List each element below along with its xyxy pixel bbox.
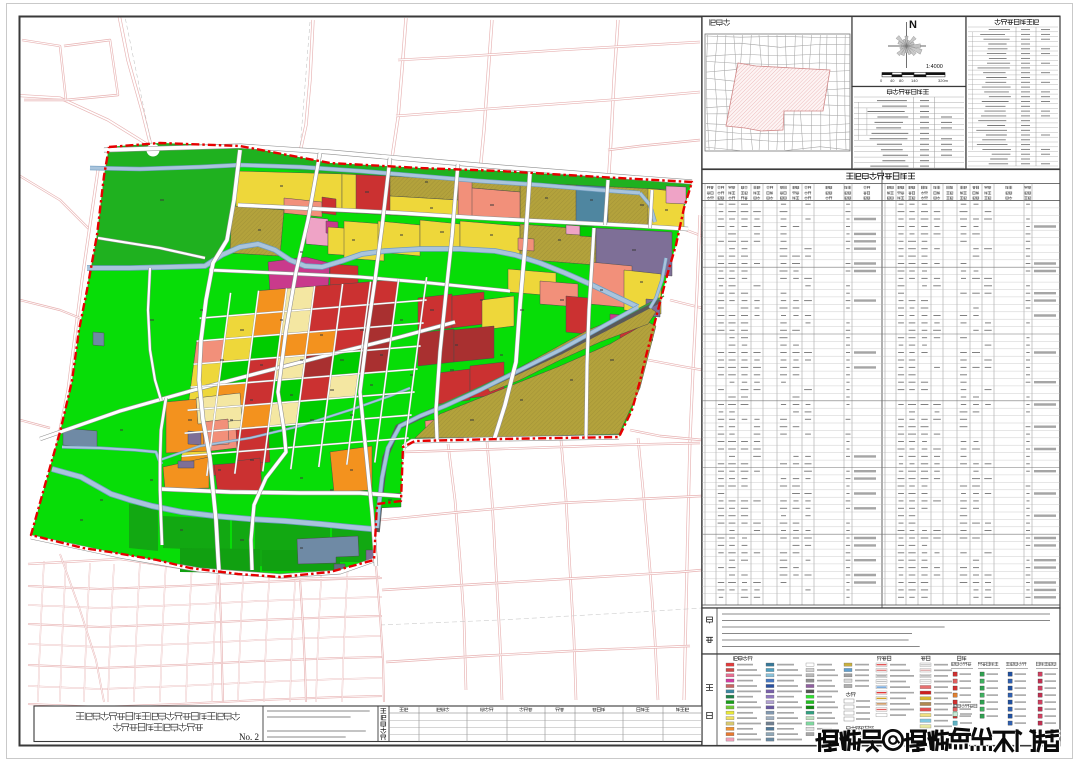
svg-text:40: 40	[890, 78, 895, 83]
svg-text:N: N	[909, 19, 917, 31]
svg-text:140: 140	[911, 78, 918, 83]
svg-text:320m: 320m	[938, 78, 949, 83]
svg-text:No. 2: No. 2	[239, 732, 259, 742]
svg-text:1:4000: 1:4000	[926, 64, 943, 70]
svg-text:80: 80	[899, 78, 904, 83]
